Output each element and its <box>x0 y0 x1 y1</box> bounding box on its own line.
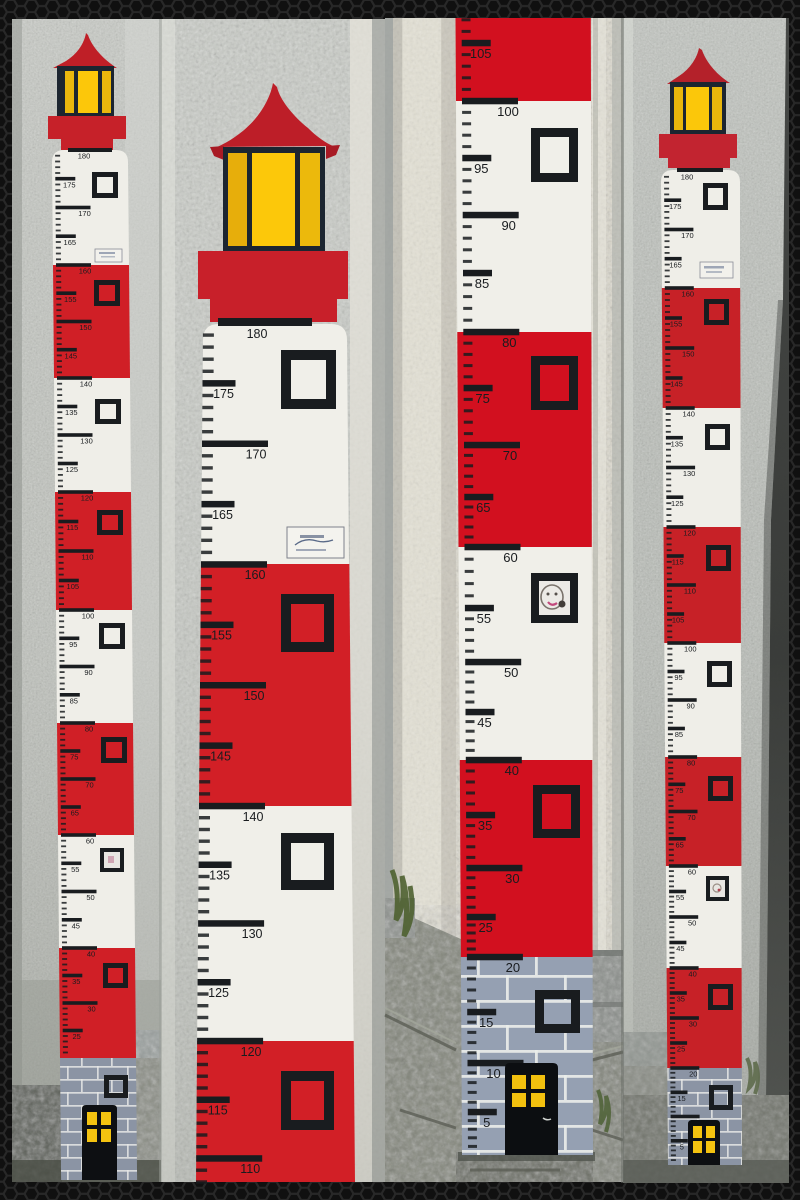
svg-text:100: 100 <box>82 612 95 621</box>
svg-text:80: 80 <box>85 725 93 734</box>
svg-text:90: 90 <box>687 702 695 711</box>
svg-text:155: 155 <box>670 320 683 329</box>
svg-text:55: 55 <box>477 611 491 626</box>
svg-text:110: 110 <box>684 587 696 596</box>
svg-text:65: 65 <box>476 500 490 515</box>
svg-text:25: 25 <box>73 1032 81 1041</box>
svg-text:155: 155 <box>211 629 232 643</box>
svg-text:150: 150 <box>682 350 695 359</box>
svg-text:55: 55 <box>71 865 79 874</box>
svg-text:115: 115 <box>672 558 684 567</box>
svg-text:35: 35 <box>72 977 80 986</box>
svg-text:145: 145 <box>65 351 78 360</box>
svg-text:50: 50 <box>688 919 696 928</box>
svg-text:105: 105 <box>470 46 492 61</box>
svg-text:115: 115 <box>66 523 78 532</box>
svg-text:135: 135 <box>671 439 684 448</box>
svg-text:95: 95 <box>69 640 77 649</box>
svg-text:180: 180 <box>78 152 91 161</box>
svg-text:130: 130 <box>80 437 93 446</box>
svg-text:45: 45 <box>676 944 684 953</box>
svg-text:140: 140 <box>80 380 93 389</box>
svg-text:50: 50 <box>86 893 94 902</box>
svg-text:30: 30 <box>505 871 519 886</box>
svg-text:20: 20 <box>689 1070 697 1079</box>
svg-text:35: 35 <box>677 995 685 1004</box>
svg-text:160: 160 <box>682 290 695 299</box>
svg-text:105: 105 <box>67 582 80 591</box>
svg-text:5: 5 <box>483 1115 490 1130</box>
svg-text:135: 135 <box>65 408 78 417</box>
svg-text:110: 110 <box>240 1162 260 1176</box>
svg-text:115: 115 <box>208 1104 228 1118</box>
svg-text:80: 80 <box>687 759 695 768</box>
svg-text:70: 70 <box>687 813 695 822</box>
svg-text:135: 135 <box>209 869 230 883</box>
svg-text:25: 25 <box>677 1045 685 1054</box>
svg-text:65: 65 <box>71 809 79 818</box>
svg-text:75: 75 <box>70 753 78 762</box>
svg-text:40: 40 <box>505 763 519 778</box>
svg-text:70: 70 <box>85 781 93 790</box>
svg-text:10: 10 <box>486 1066 500 1081</box>
svg-text:55: 55 <box>676 893 684 902</box>
svg-text:165: 165 <box>669 260 682 269</box>
svg-text:70: 70 <box>503 448 517 463</box>
svg-text:35: 35 <box>478 818 492 833</box>
svg-text:95: 95 <box>474 161 488 176</box>
svg-text:165: 165 <box>64 238 77 247</box>
svg-text:5: 5 <box>680 1143 684 1152</box>
svg-text:150: 150 <box>244 689 265 703</box>
svg-text:100: 100 <box>497 104 519 119</box>
svg-text:90: 90 <box>501 218 515 233</box>
svg-text:45: 45 <box>477 715 491 730</box>
svg-text:105: 105 <box>672 616 685 625</box>
svg-text:175: 175 <box>213 387 234 401</box>
svg-text:160: 160 <box>245 568 266 582</box>
svg-text:170: 170 <box>78 209 91 218</box>
svg-text:170: 170 <box>681 231 694 240</box>
svg-text:170: 170 <box>246 448 267 462</box>
svg-text:85: 85 <box>475 276 489 291</box>
svg-text:75: 75 <box>675 786 683 795</box>
svg-text:95: 95 <box>674 673 682 682</box>
svg-text:120: 120 <box>241 1045 262 1059</box>
svg-text:175: 175 <box>63 181 76 190</box>
svg-text:120: 120 <box>683 529 696 538</box>
svg-text:30: 30 <box>87 1005 95 1014</box>
svg-text:175: 175 <box>669 202 682 211</box>
svg-text:165: 165 <box>212 508 233 522</box>
svg-text:150: 150 <box>79 323 92 332</box>
svg-text:140: 140 <box>243 810 264 824</box>
svg-text:160: 160 <box>79 267 92 276</box>
svg-text:130: 130 <box>242 927 263 941</box>
svg-text:125: 125 <box>66 465 79 474</box>
svg-text:180: 180 <box>247 327 268 341</box>
svg-text:20: 20 <box>506 960 520 975</box>
svg-text:45: 45 <box>72 921 80 930</box>
svg-text:145: 145 <box>210 749 231 763</box>
svg-text:130: 130 <box>683 469 696 478</box>
svg-text:140: 140 <box>682 410 695 419</box>
svg-text:90: 90 <box>84 668 92 677</box>
svg-text:60: 60 <box>688 868 696 877</box>
svg-text:30: 30 <box>689 1020 697 1029</box>
svg-text:100: 100 <box>684 645 697 654</box>
svg-text:155: 155 <box>64 295 77 304</box>
svg-text:180: 180 <box>681 173 694 182</box>
svg-text:145: 145 <box>670 380 683 389</box>
svg-text:120: 120 <box>81 494 94 503</box>
svg-text:80: 80 <box>502 335 516 350</box>
svg-text:65: 65 <box>676 840 684 849</box>
svg-text:125: 125 <box>671 499 684 508</box>
svg-text:50: 50 <box>504 665 518 680</box>
svg-text:40: 40 <box>87 950 95 959</box>
svg-text:40: 40 <box>688 970 696 979</box>
svg-text:125: 125 <box>208 986 229 1000</box>
svg-text:25: 25 <box>478 920 492 935</box>
svg-text:60: 60 <box>86 837 94 846</box>
svg-text:15: 15 <box>677 1094 685 1103</box>
svg-text:15: 15 <box>479 1015 493 1030</box>
svg-text:85: 85 <box>70 696 78 705</box>
svg-text:75: 75 <box>475 391 489 406</box>
svg-text:60: 60 <box>503 550 517 565</box>
svg-text:85: 85 <box>675 730 683 739</box>
svg-text:110: 110 <box>82 553 94 562</box>
